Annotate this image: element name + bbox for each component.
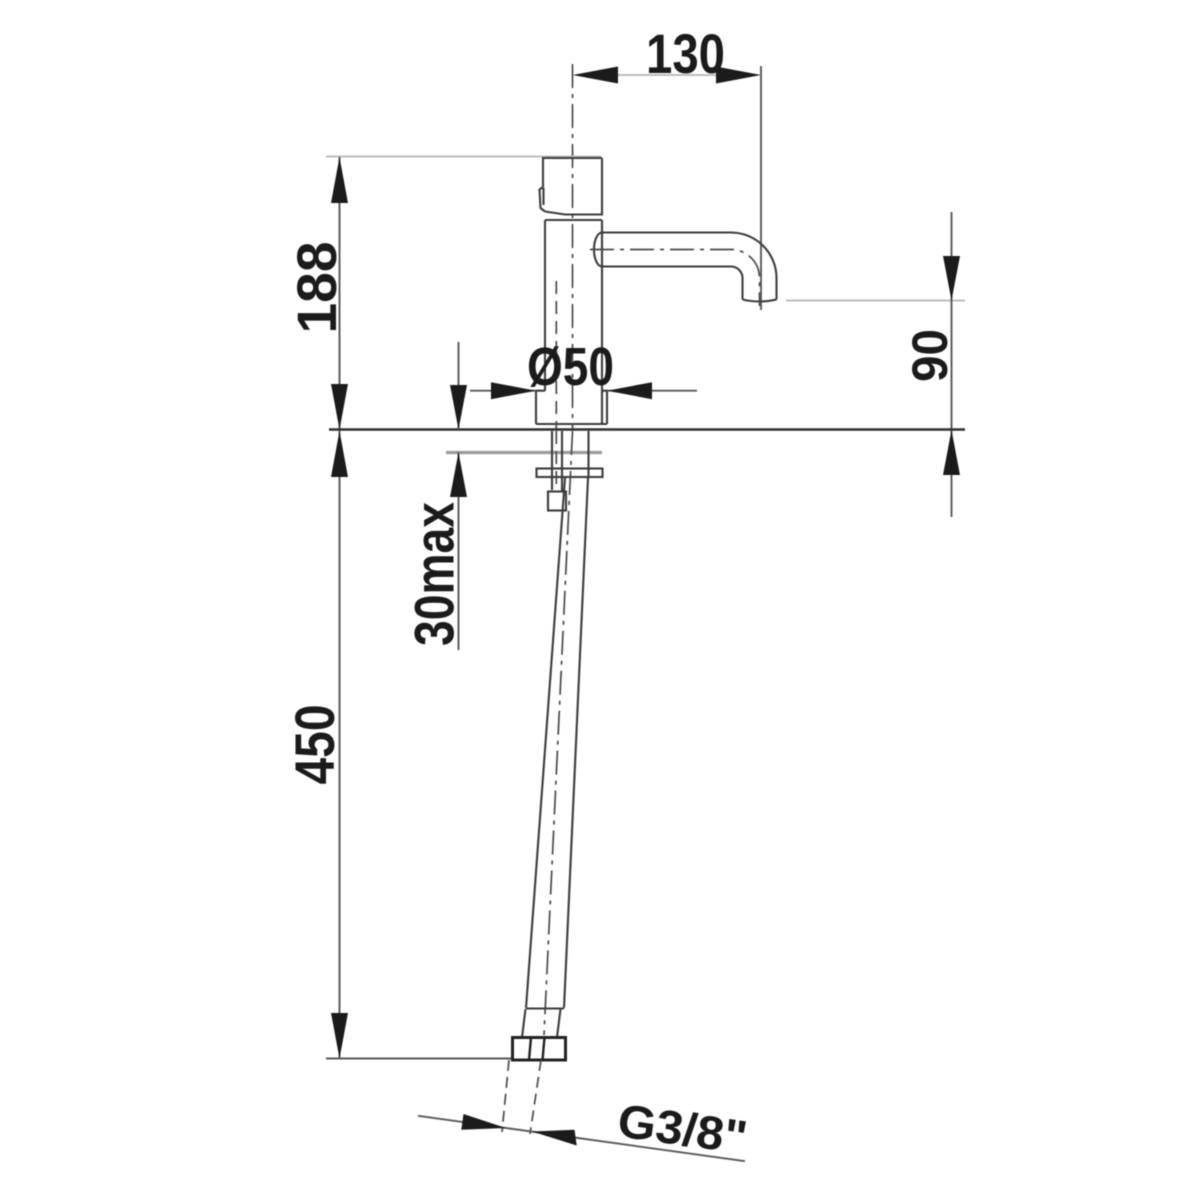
svg-text:90: 90 bbox=[902, 329, 958, 382]
svg-text:450: 450 bbox=[283, 705, 346, 785]
svg-text:Ø50: Ø50 bbox=[527, 337, 614, 397]
svg-text:30max: 30max bbox=[403, 502, 466, 646]
